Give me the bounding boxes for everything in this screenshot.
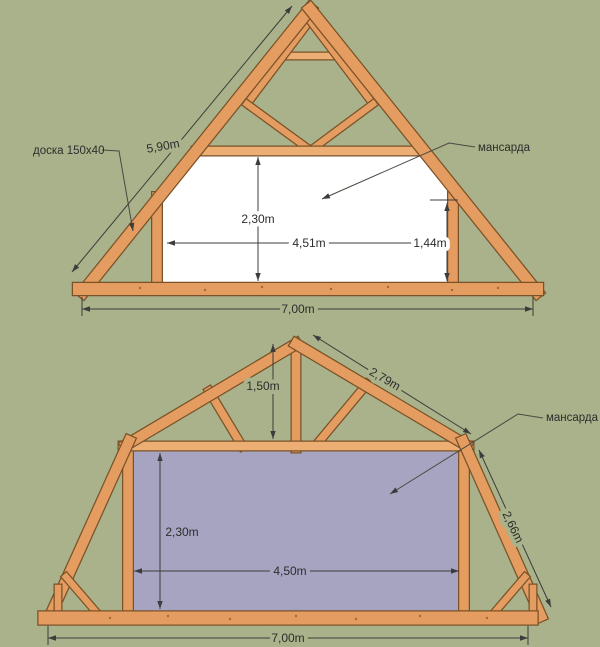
dim-room-height-b: 2,30m [165, 525, 198, 539]
left-v-strut [247, 104, 310, 150]
triangular-attic-truss: 5,90m 2,30m 4,51m 1,44m 7,00m доска 150x… [33, 6, 537, 316]
left-scissor-brace [247, 22, 309, 104]
diagram-canvas: 5,90m 2,30m 4,51m 1,44m 7,00m доска 150x… [0, 0, 600, 647]
upper-left-rafter [126, 344, 296, 445]
dim-room-width-b: 4,50m [273, 564, 306, 578]
attic-room-top [152, 150, 458, 291]
dim-room-width: 4,51m [292, 236, 325, 250]
right-strut [317, 384, 367, 444]
label-board: доска 150x40 [33, 145, 104, 157]
dim-wall-height: 1,44m [413, 236, 446, 250]
dim-rafter-length: 5,90m [145, 136, 180, 156]
right-corner-brace [494, 577, 525, 613]
dim-span-b: 7,00m [271, 631, 304, 645]
label-mansard-top: мансарда [478, 142, 531, 154]
dim-room-height: 2,30m [241, 212, 274, 226]
mansard-gambrel-truss: 1,50m 2,79m 2,66m 2,30m 4,50m 7,00m манс… [45, 335, 599, 645]
right-scissor-brace [311, 22, 373, 104]
roof-truss-diagram: 5,90m 2,30m 4,51m 1,44m 7,00m доска 150x… [0, 0, 600, 647]
label-mansard-bottom: мансарда [546, 412, 599, 424]
right-v-strut [311, 104, 373, 150]
dim-span: 7,00m [281, 302, 314, 316]
left-corner-brace [66, 577, 97, 613]
dim-ridge-height: 1,50m [246, 379, 279, 393]
upper-right-rafter [296, 344, 466, 445]
